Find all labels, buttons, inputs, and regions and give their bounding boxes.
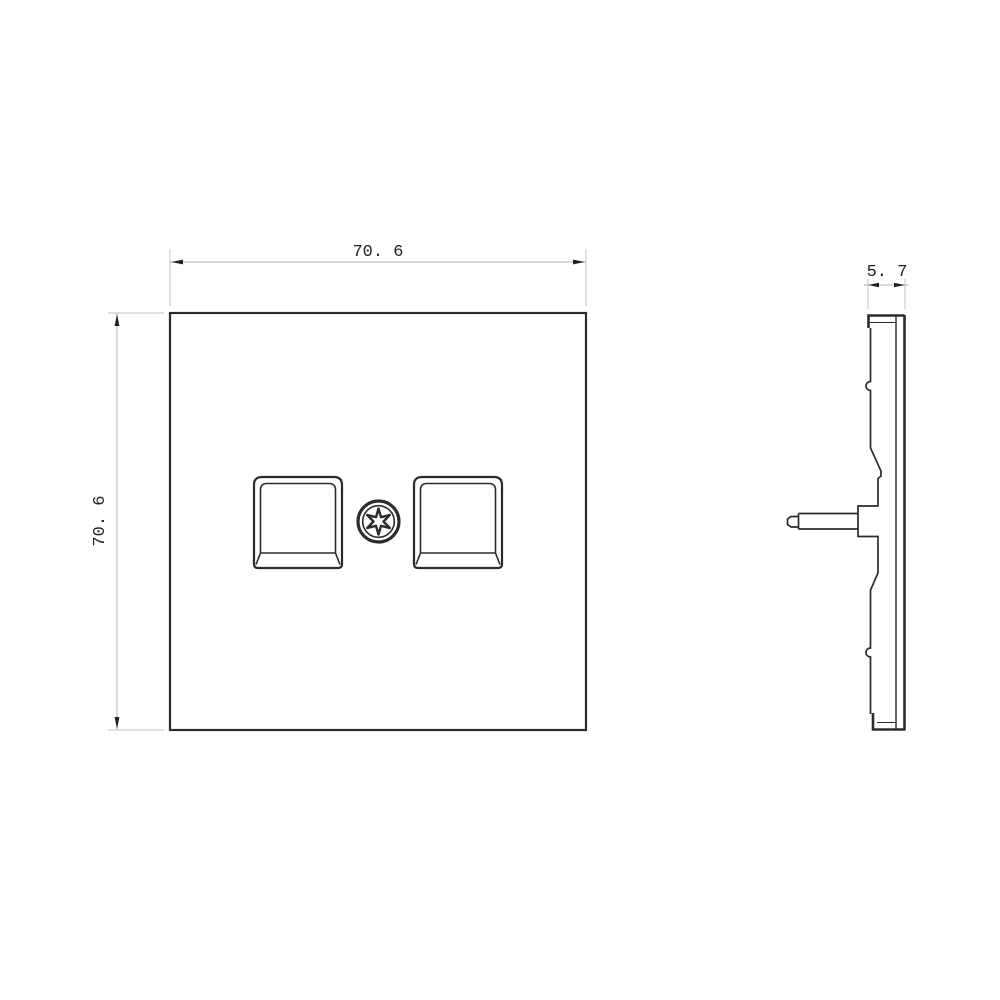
screw-shaft (799, 514, 859, 530)
dimension-height: 70. 6 (91, 313, 164, 730)
arrowhead-up-icon (115, 314, 120, 326)
jack-opening-right (414, 477, 502, 568)
side-view: 5. 7 (788, 263, 910, 731)
dimension-thickness: 5. 7 (864, 263, 909, 309)
dimension-height-label: 70. 6 (91, 495, 110, 546)
arrowhead-left-icon (868, 283, 879, 287)
dimension-thickness-label: 5. 7 (867, 263, 908, 282)
side-top-cap (869, 316, 905, 329)
arrowhead-down-icon (115, 717, 120, 729)
jack-opening-right-outer (414, 477, 502, 568)
screw-recess-star (367, 509, 390, 535)
jack-opening-right-inner-bevel (416, 484, 500, 565)
arrowhead-right-icon (573, 260, 585, 265)
dimension-width: 70. 6 (170, 243, 586, 306)
front-view: 70. 6 70. 6 (91, 243, 586, 730)
dimension-width-label: 70. 6 (352, 243, 403, 262)
side-rear-profile (858, 328, 881, 714)
technical-drawing-page: 70. 6 70. 6 (0, 0, 1000, 1000)
screw-tip (788, 517, 799, 528)
arrowhead-right-icon (894, 283, 905, 287)
screw-head-icon (358, 501, 399, 542)
arrowhead-left-icon (171, 260, 183, 265)
screw-side-profile (788, 514, 859, 530)
side-bottom-cap (873, 713, 905, 730)
jack-opening-left (254, 477, 342, 568)
drawing-canvas: 70. 6 70. 6 (0, 0, 1000, 1000)
jack-opening-left-outer (254, 477, 342, 568)
jack-opening-left-inner-bevel (256, 484, 340, 565)
